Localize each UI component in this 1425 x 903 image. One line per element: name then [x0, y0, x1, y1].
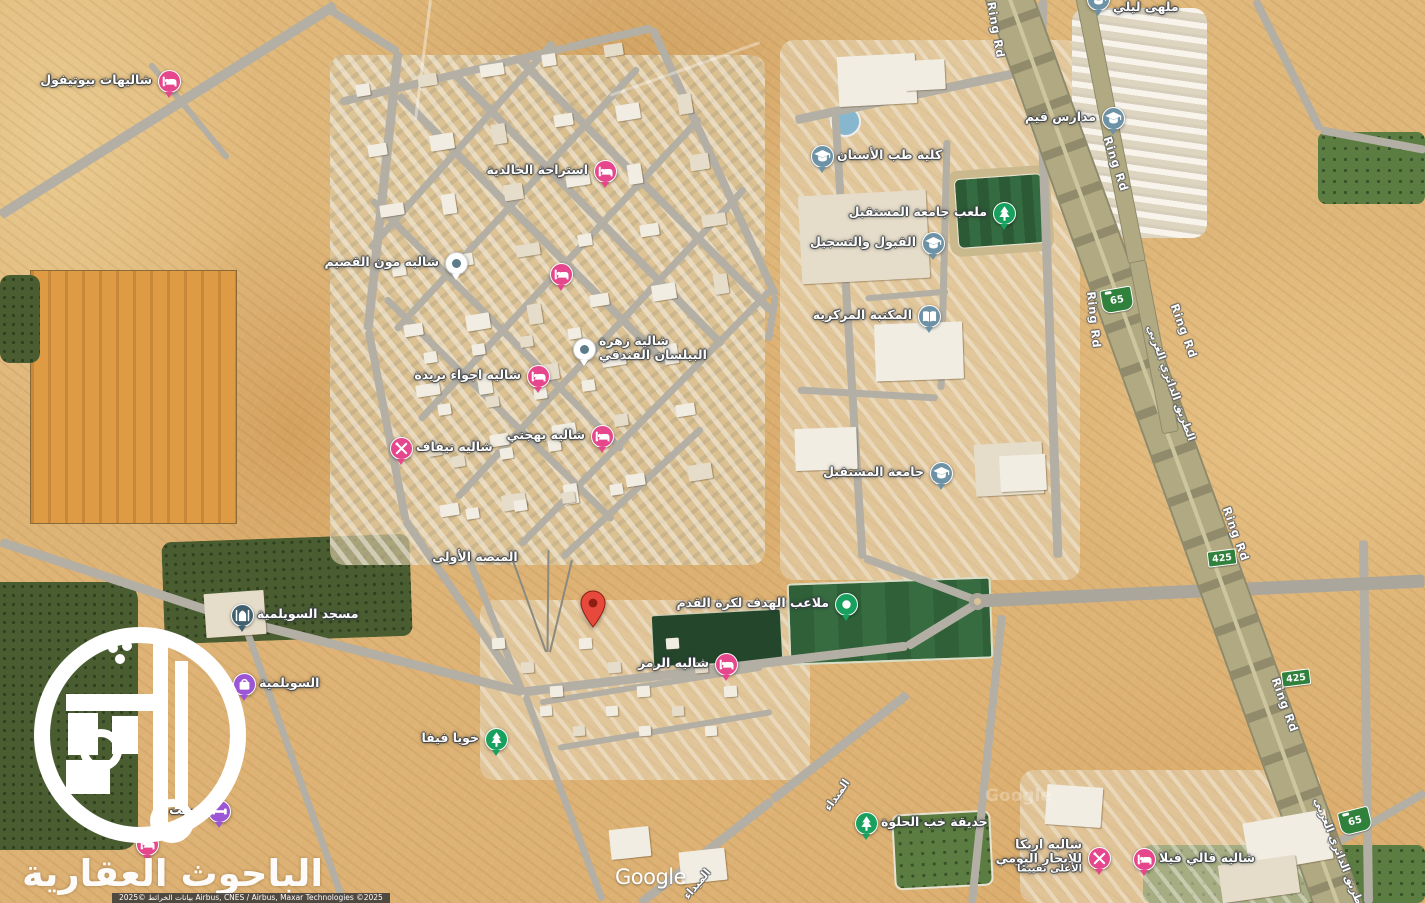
zahrat-bilasan-hotel-label[interactable]: شالية زهرةالبيلسان الفندقي: [599, 334, 707, 361]
lodging-unlabeled-bed-icon[interactable]: [550, 263, 573, 286]
building: [639, 726, 652, 737]
khab-alhalwa-garden-label[interactable]: حديقة خب الحلوة: [881, 815, 988, 829]
khoya-fifa-tree-icon[interactable]: [485, 728, 508, 751]
chalet-qali-villa-bed-icon[interactable]: [1133, 848, 1156, 871]
suwailimiya-label[interactable]: السويلمية: [259, 676, 319, 690]
suwailimiya-mosque-label[interactable]: مسجد السويلمية: [257, 607, 358, 621]
gym-partial-gym-icon[interactable]: [208, 800, 231, 823]
alhadaf-football-fields-dot-icon[interactable]: [835, 593, 858, 616]
first-platform-label[interactable]: المنصة الأولى: [432, 550, 517, 564]
road: [1251, 0, 1323, 132]
chalet-areca-tools-icon[interactable]: [1088, 847, 1111, 870]
central-library-label[interactable]: المكتبة المركزية: [813, 308, 912, 322]
night-club-partial-grad-icon[interactable]: [1087, 0, 1110, 11]
building: [550, 686, 564, 698]
khab-alhalwa-garden-tree-icon[interactable]: [855, 812, 878, 835]
building: [705, 726, 718, 737]
chalet-alramz-bed-icon[interactable]: [715, 653, 738, 676]
google-logo[interactable]: Google: [615, 865, 686, 889]
building: [713, 273, 730, 295]
building: [503, 183, 524, 202]
chalets-beautiful-label[interactable]: شاليهات بيوتيفول: [40, 73, 152, 87]
building: [677, 93, 694, 115]
chalet-areca-label[interactable]: شاليه اريكاللايجار اليوميالأعلى تقييمًا: [996, 837, 1082, 875]
realestate-brand-watermark: الباحوث العقارية: [22, 852, 522, 895]
route-shield-425: 425: [1281, 668, 1312, 687]
zahrat-bilasan-hotel-whitedot-icon[interactable]: [573, 338, 596, 361]
future-university-stadium-tree-icon[interactable]: [993, 202, 1016, 225]
chalet-tifaf-label[interactable]: شاليه تيفاف: [416, 440, 493, 454]
road-label: Ring Rd: [1168, 302, 1201, 361]
chalet-bahjati-label[interactable]: شاليه بهجتي: [507, 428, 585, 442]
building: [492, 638, 506, 650]
building: [573, 726, 586, 737]
istiraha-khalidiya-bed-icon[interactable]: [594, 160, 617, 183]
building: [527, 303, 544, 325]
building: [561, 491, 576, 504]
chalet-ajwaa-buraidah-label[interactable]: شاليه اجواء بريدة: [414, 368, 521, 382]
road: [0, 1, 338, 219]
building: [608, 662, 622, 674]
building: [724, 686, 738, 698]
chalet-alramz-label[interactable]: شاليه الرمز: [638, 656, 709, 670]
admission-registration-grad-icon[interactable]: [922, 232, 945, 255]
building: [874, 321, 964, 381]
building: [613, 413, 629, 427]
chalet-tifaf-tools-icon[interactable]: [390, 437, 413, 460]
satellite-map[interactable]: شاليهات بيوتيفولاستراحة الخالديةشاليه مو…: [0, 0, 1425, 903]
alhadaf-football-fields-label[interactable]: ملاعب الهدف لكرة القدم: [676, 596, 829, 610]
gym-partial-label[interactable]: زولت: [169, 803, 202, 817]
building: [540, 706, 553, 717]
future-university-label[interactable]: جامعة المستقبل: [823, 465, 924, 479]
building: [672, 706, 685, 717]
chalet-qali-villa-label[interactable]: شاليه قالي فيلا: [1159, 851, 1255, 865]
future-university-stadium-label[interactable]: ملعب جامعة المستقبل: [849, 205, 987, 219]
building: [519, 335, 534, 348]
building: [999, 454, 1047, 492]
building: [441, 193, 458, 215]
suwailimiya-shop-icon[interactable]: [233, 673, 256, 696]
chalets-beautiful-bed-icon[interactable]: [158, 70, 181, 93]
building: [904, 59, 946, 91]
istiraha-khalidiya-label[interactable]: استراحة الخالدية: [486, 163, 588, 177]
future-university-grad-icon[interactable]: [930, 462, 953, 485]
building: [499, 447, 514, 460]
night-club-partial-label[interactable]: ملهى ليلي: [1113, 0, 1179, 13]
building: [1045, 784, 1104, 828]
building: [491, 123, 508, 145]
red-map-pin-icon[interactable]: [580, 590, 606, 628]
qeem-schools-label[interactable]: مدارس قيم: [1025, 110, 1096, 124]
grove-left-edge: [0, 275, 40, 363]
chalet-bahjati-bed-icon[interactable]: [591, 425, 614, 448]
farm-plot: [30, 270, 237, 524]
admission-registration-label[interactable]: القبول والتسجيل: [810, 235, 916, 249]
building: [521, 662, 535, 674]
suwailimiya-mosque-mosque-icon[interactable]: [231, 604, 254, 627]
building: [627, 163, 644, 185]
dental-college-label[interactable]: كلية طب الأسنان: [837, 148, 942, 162]
dental-college-grad-icon[interactable]: [811, 145, 834, 168]
google-faint-watermark: Google: [985, 786, 1052, 806]
khoya-fifa-label[interactable]: خويا فيفا: [421, 731, 479, 745]
building: [541, 53, 557, 67]
building: [666, 638, 680, 650]
building: [581, 379, 596, 392]
building: [485, 395, 500, 408]
building: [606, 706, 619, 717]
building: [437, 403, 452, 416]
building: [513, 499, 528, 512]
road-label: الميداء: [821, 777, 852, 814]
central-library-book-icon[interactable]: [918, 305, 941, 328]
map-attribution: بيانات الخرائط ©2025 Airbus, CNES / Airb…: [112, 893, 390, 903]
building: [423, 351, 438, 364]
building: [637, 686, 651, 698]
chalet-ajwaa-buraidah-bed-icon[interactable]: [527, 365, 550, 388]
qeem-schools-grad-icon[interactable]: [1102, 107, 1125, 130]
building: [577, 233, 593, 247]
orchard-west: [0, 582, 138, 850]
chalet-moon-qassim-whitedot-icon[interactable]: [445, 252, 468, 275]
roundabout: [969, 593, 986, 610]
building: [689, 153, 710, 172]
building: [579, 638, 593, 650]
road: [328, 7, 400, 56]
chalet-moon-qassim-label[interactable]: شاليه مون القصيم: [324, 255, 439, 269]
building: [609, 826, 652, 860]
building: [609, 483, 624, 496]
building: [451, 455, 466, 468]
building: [471, 343, 486, 356]
building: [355, 83, 371, 97]
building: [465, 507, 480, 520]
road: [546, 550, 549, 652]
